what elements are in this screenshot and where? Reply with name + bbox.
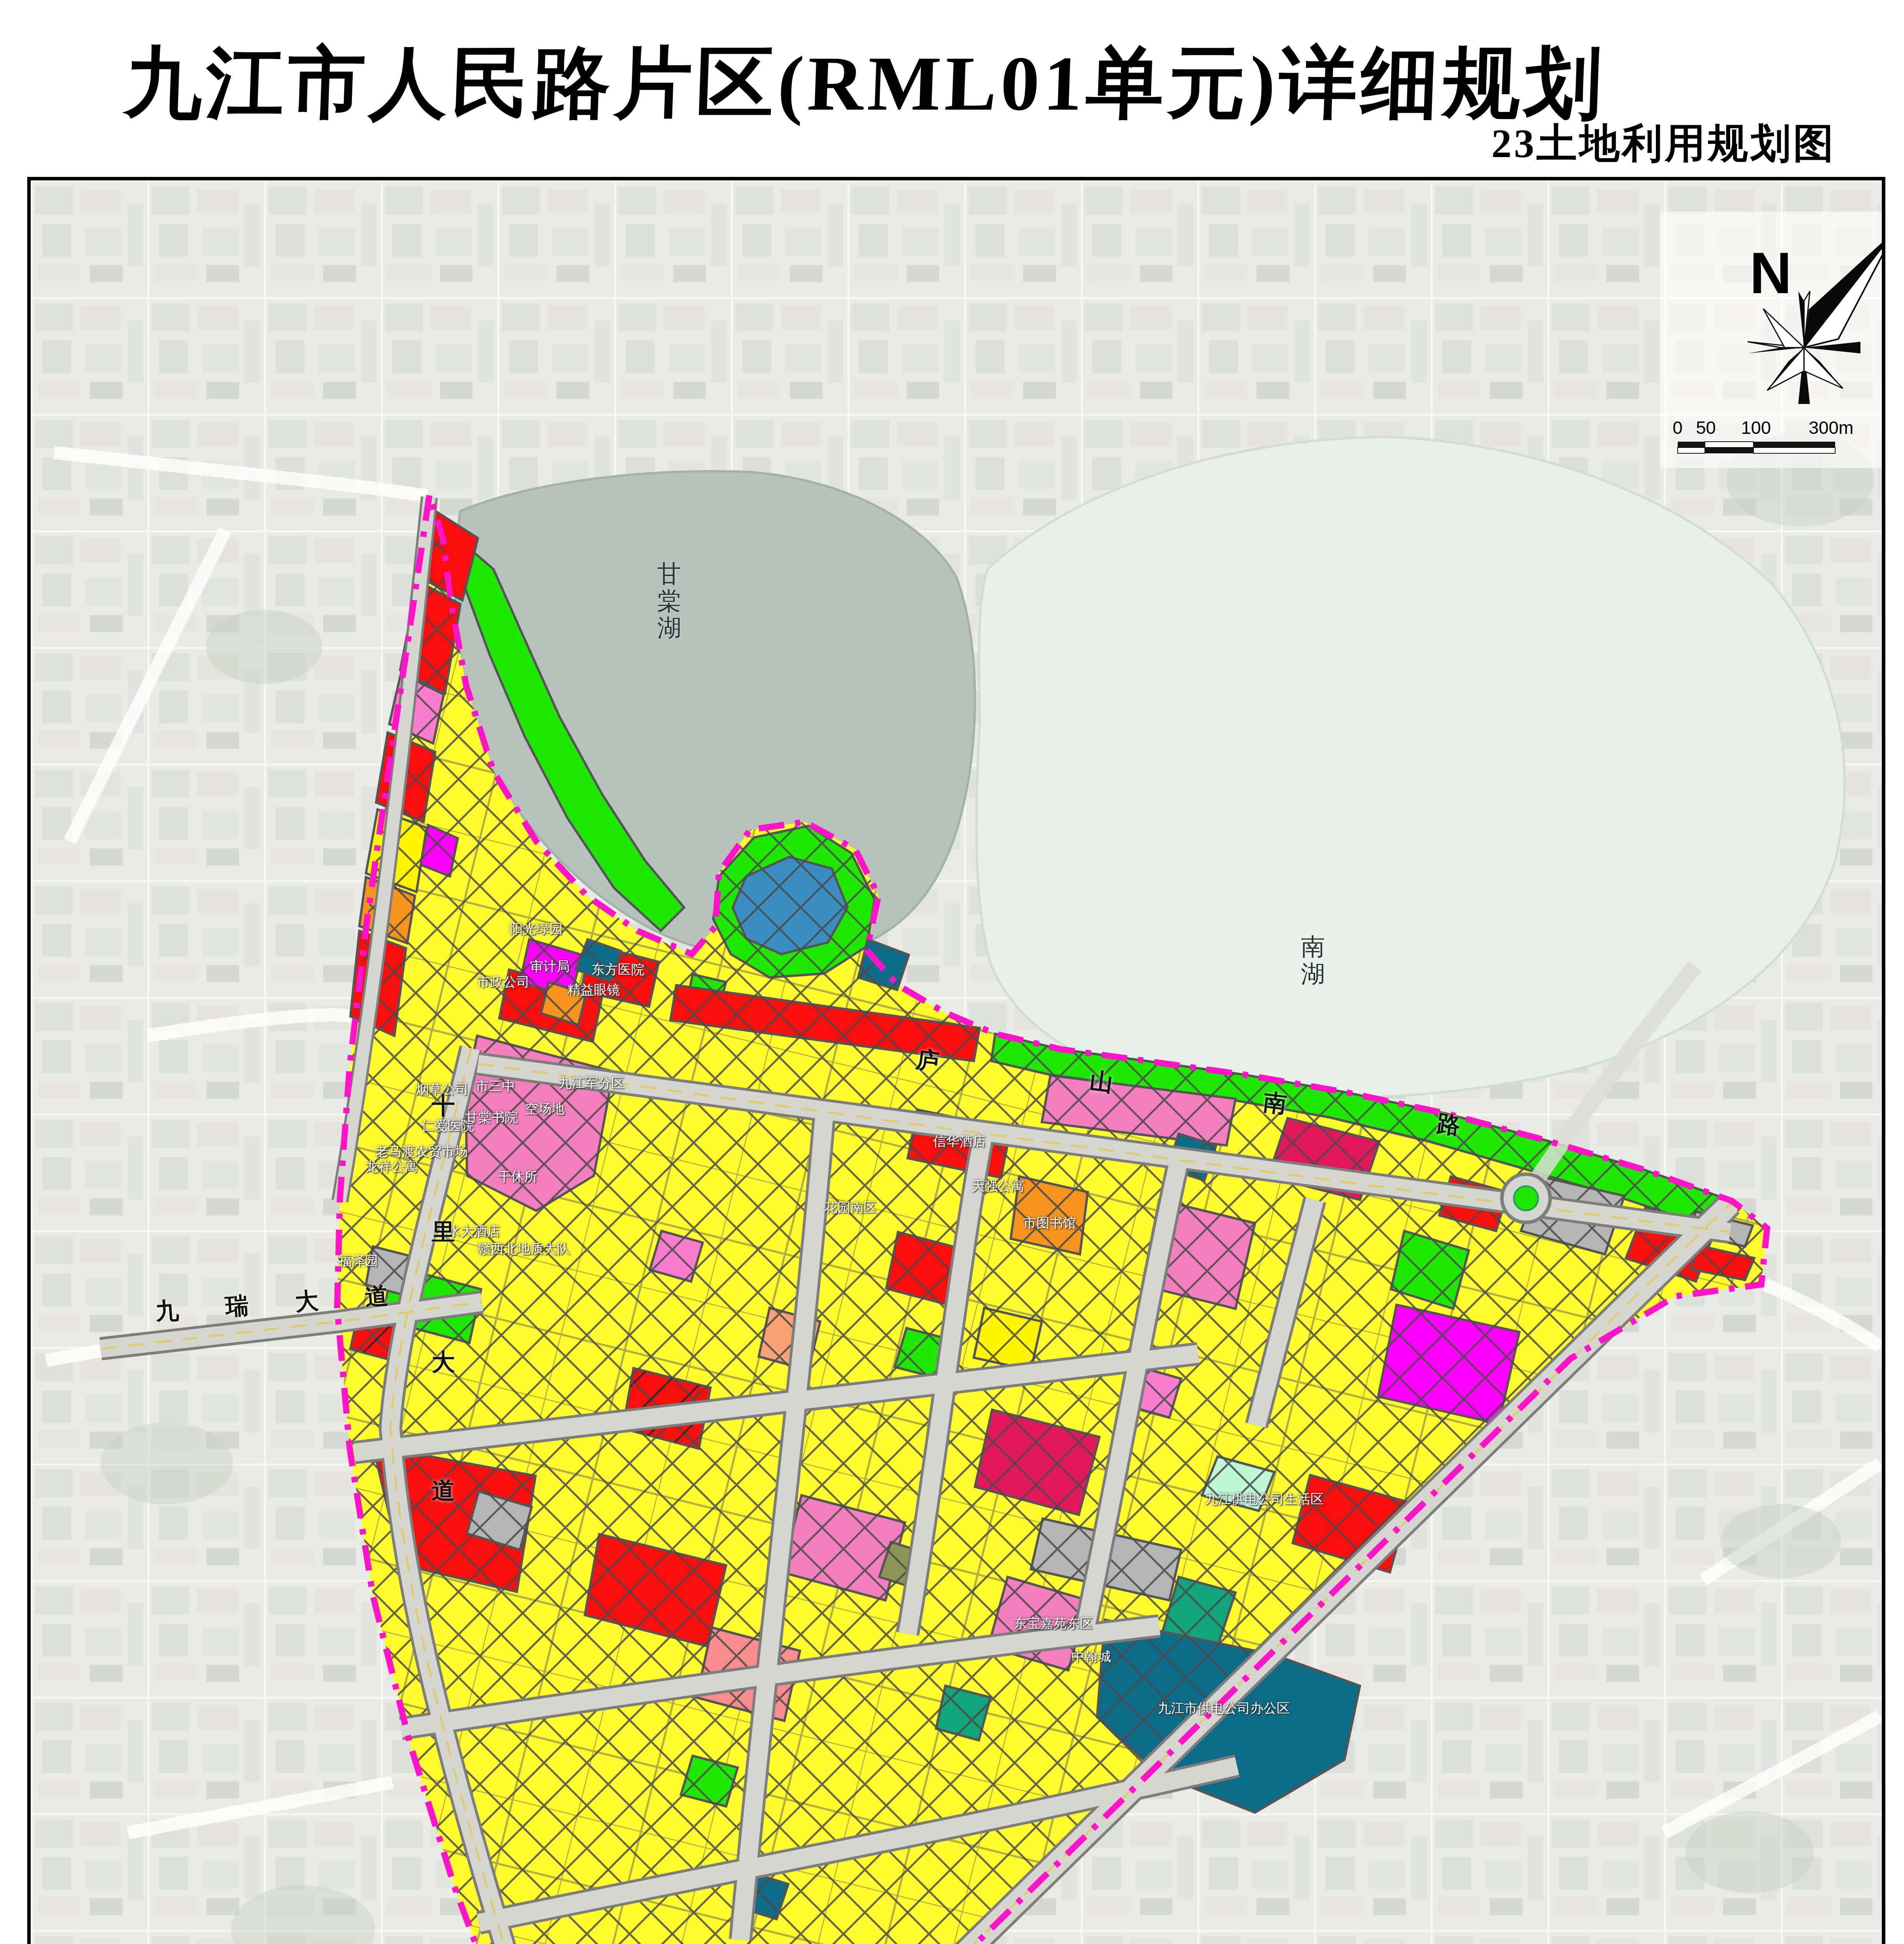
zone-label: 精益眼镜 (567, 981, 620, 999)
lake-label: 甘棠湖 (653, 542, 686, 624)
zone-label: 赣西北地质大队 (478, 1240, 570, 1258)
zone-label: 审计局 (530, 958, 570, 975)
zone-label: 市图书馆 (1023, 1214, 1076, 1232)
north-label: N (1750, 240, 1792, 306)
zone-label: 龙祥公寓 (365, 1158, 418, 1176)
svg-text:0: 0 (1673, 418, 1683, 438)
zone-label: 福泽园 (338, 1252, 378, 1270)
zone-label: 干休所 (498, 1168, 537, 1186)
scale-bar: 0 50 100 300m (1673, 418, 1853, 453)
svg-text:300m: 300m (1809, 418, 1853, 438)
zone-label: 东方医院 (591, 961, 644, 979)
zone-label: 天强公寓 (971, 1177, 1024, 1195)
zone-label: 九江市供电公司办公区 (1158, 1699, 1290, 1717)
zone-label: 东宝嘉苑东区 (1014, 1615, 1093, 1633)
zone-label: 九江军分区 (558, 1074, 625, 1092)
road-label: 十里大道 (427, 1075, 459, 1588)
zone-label: 中翰城 (1071, 1648, 1111, 1666)
map-frame: N 0 50 100 300m 阳光绿园审计局东方医院市政公司精益眼镜市三中烟草… (27, 177, 1885, 1944)
zone-label: 空场地 (525, 1100, 565, 1118)
svg-text:50: 50 (1696, 418, 1716, 438)
page-title: 九江市人民路片区(RML01单元)详细规划 (122, 31, 1608, 136)
zone-label: 市政公司 (477, 973, 530, 991)
zone-label: 花园南区 (824, 1199, 877, 1217)
roundabout-green (1514, 1186, 1538, 1210)
lake-label: 南湖 (1297, 915, 1329, 970)
page-subtitle: 23土地利用规划图 (1491, 117, 1836, 171)
planning-sheet: 九江市人民路片区(RML01单元)详细规划 23土地利用规划图 (0, 0, 1904, 1944)
zone-label: 信华酒店 (933, 1133, 986, 1150)
svg-text:100: 100 (1741, 418, 1771, 438)
zone-label: 阳光绿园 (510, 920, 563, 938)
lake-nanhu (976, 437, 1845, 1098)
land-use-map: N 0 50 100 300m 阳光绿园审计局东方医院市政公司精益眼镜市三中烟草… (31, 180, 1882, 1944)
zone-label: 九江供电公司生活区 (1205, 1490, 1324, 1508)
zone-label: 市三中 (476, 1077, 515, 1095)
